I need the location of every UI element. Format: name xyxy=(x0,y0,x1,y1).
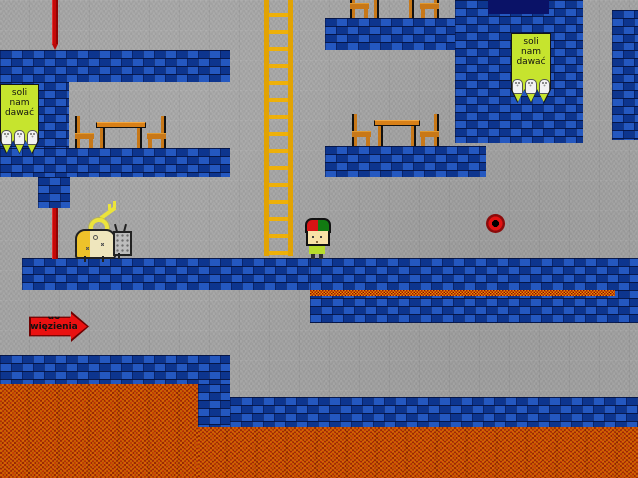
chair-back xyxy=(434,114,439,146)
banner-text-line: nam xyxy=(512,47,550,57)
chair xyxy=(420,114,439,146)
chair-back xyxy=(161,116,166,148)
brick-block-hanging xyxy=(38,177,70,208)
chair xyxy=(350,0,369,18)
brick-platform-top-center xyxy=(325,18,455,50)
sign-text-line: więzienia xyxy=(29,322,79,332)
brick-ceiling-left xyxy=(0,50,230,82)
sign-text-line: do xyxy=(29,312,79,322)
salt-shaker-icon xyxy=(525,79,536,94)
table-leg xyxy=(378,126,383,146)
table xyxy=(374,120,420,146)
salt-shaker-row xyxy=(512,79,550,94)
lava-pool-right xyxy=(198,427,638,478)
game-scene[interactable]: soli nam dawać soli nam dawać xyxy=(0,0,638,478)
ladder[interactable] xyxy=(264,0,293,256)
chair-back xyxy=(75,116,80,148)
table-leg xyxy=(411,126,416,146)
robot-leg xyxy=(102,256,104,262)
brick-floor-center-room xyxy=(325,146,486,177)
chair-leg xyxy=(364,9,368,18)
player[interactable] xyxy=(304,218,332,259)
chair xyxy=(147,116,166,148)
lava-pool-left xyxy=(0,384,198,478)
lava-strip-inset xyxy=(310,290,615,296)
salt-shaker-icon xyxy=(27,130,38,145)
chair-leg xyxy=(366,137,370,146)
red-pole-top-tip xyxy=(52,44,58,50)
chair xyxy=(420,0,439,18)
chair-leg xyxy=(421,9,425,18)
red-orb xyxy=(486,214,505,233)
banner-text-line: nam xyxy=(1,98,38,108)
table xyxy=(370,0,418,18)
key-tooth xyxy=(113,201,116,208)
red-pole-mid xyxy=(52,208,58,259)
banner-text-line: soli xyxy=(512,37,550,47)
salt-shaker-icon xyxy=(14,130,25,145)
brick-floor-left-room xyxy=(0,148,230,177)
salt-banner-left: soli nam dawać xyxy=(0,84,39,154)
brick-main-platform-left xyxy=(22,258,310,290)
red-pole-top xyxy=(52,0,58,44)
table-leg xyxy=(409,0,414,18)
banner-text-line: soli xyxy=(1,88,38,98)
chair-leg xyxy=(421,137,425,146)
brick-step-column xyxy=(198,384,230,427)
player-eye xyxy=(312,236,314,238)
table xyxy=(96,122,146,148)
dark-doorway xyxy=(488,0,549,14)
robot-leg xyxy=(84,256,86,262)
salt-banner-left-face: soli nam dawać xyxy=(1,85,38,153)
chair-leg xyxy=(89,139,93,148)
table-leg xyxy=(374,0,379,18)
prison-arrow-text: do więzienia xyxy=(29,312,79,332)
banner-text-line: dawać xyxy=(1,108,38,118)
chair xyxy=(352,114,371,146)
salt-shaker-icon xyxy=(512,79,523,94)
prison-arrow-sign: do więzienia xyxy=(29,311,89,342)
robot-x-mark xyxy=(86,247,89,250)
robot-leg xyxy=(118,253,120,259)
brick-column-far-right xyxy=(612,10,638,140)
banner-text-line: dawać xyxy=(512,57,550,67)
player-eye xyxy=(320,236,322,238)
robot-body xyxy=(75,229,116,259)
robot-x-mark xyxy=(101,243,104,246)
brick-lower-platform-left xyxy=(0,355,230,384)
salt-banner-right: soli nam dawać xyxy=(511,33,551,103)
player-leg xyxy=(311,254,315,259)
salt-shaker-icon xyxy=(1,130,12,145)
player-face xyxy=(306,231,330,246)
player-shirt xyxy=(309,246,325,254)
player-leg xyxy=(319,254,323,259)
key-tooth xyxy=(108,204,111,210)
salt-shaker-icon xyxy=(539,79,550,94)
robot-eye xyxy=(93,235,98,240)
robot-with-key xyxy=(72,200,132,260)
chair xyxy=(75,116,94,148)
robot-speaker-box xyxy=(113,231,132,256)
salt-shaker-row xyxy=(1,130,38,145)
brick-lower-platform-right xyxy=(230,397,638,427)
table-leg xyxy=(137,128,142,148)
chair-back xyxy=(352,114,357,146)
chair-leg xyxy=(148,139,152,148)
salt-banner-right-face: soli nam dawać xyxy=(512,34,550,102)
table-leg xyxy=(100,128,105,148)
player-mouth xyxy=(316,241,318,243)
